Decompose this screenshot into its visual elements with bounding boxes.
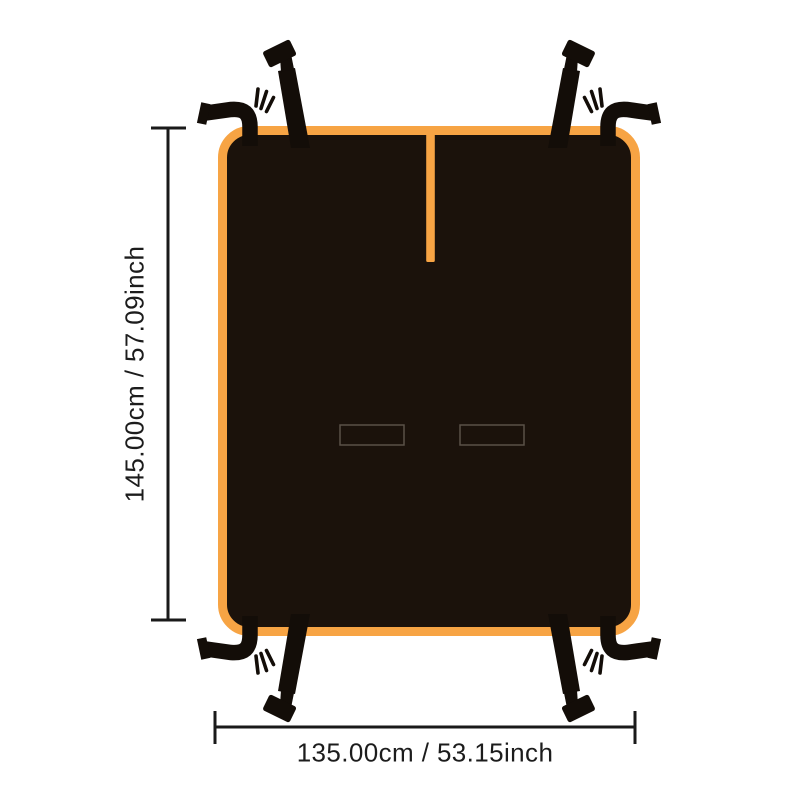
width-dimension-label: 135.00cm / 53.15inch — [297, 738, 554, 769]
strap-set-top-left — [197, 39, 310, 148]
product-dimension-diagram: 145.00cm / 57.09inch 135.00cm / 53.15inc… — [0, 0, 800, 800]
height-dimension-label: 145.00cm / 57.09inch — [120, 246, 151, 503]
strap-set-bottom-right — [548, 614, 661, 723]
strap-set-top-right — [548, 39, 661, 148]
strap-set-bottom-left — [197, 614, 310, 723]
height-dimension-line — [151, 128, 186, 620]
center-slit-icon — [426, 128, 435, 262]
